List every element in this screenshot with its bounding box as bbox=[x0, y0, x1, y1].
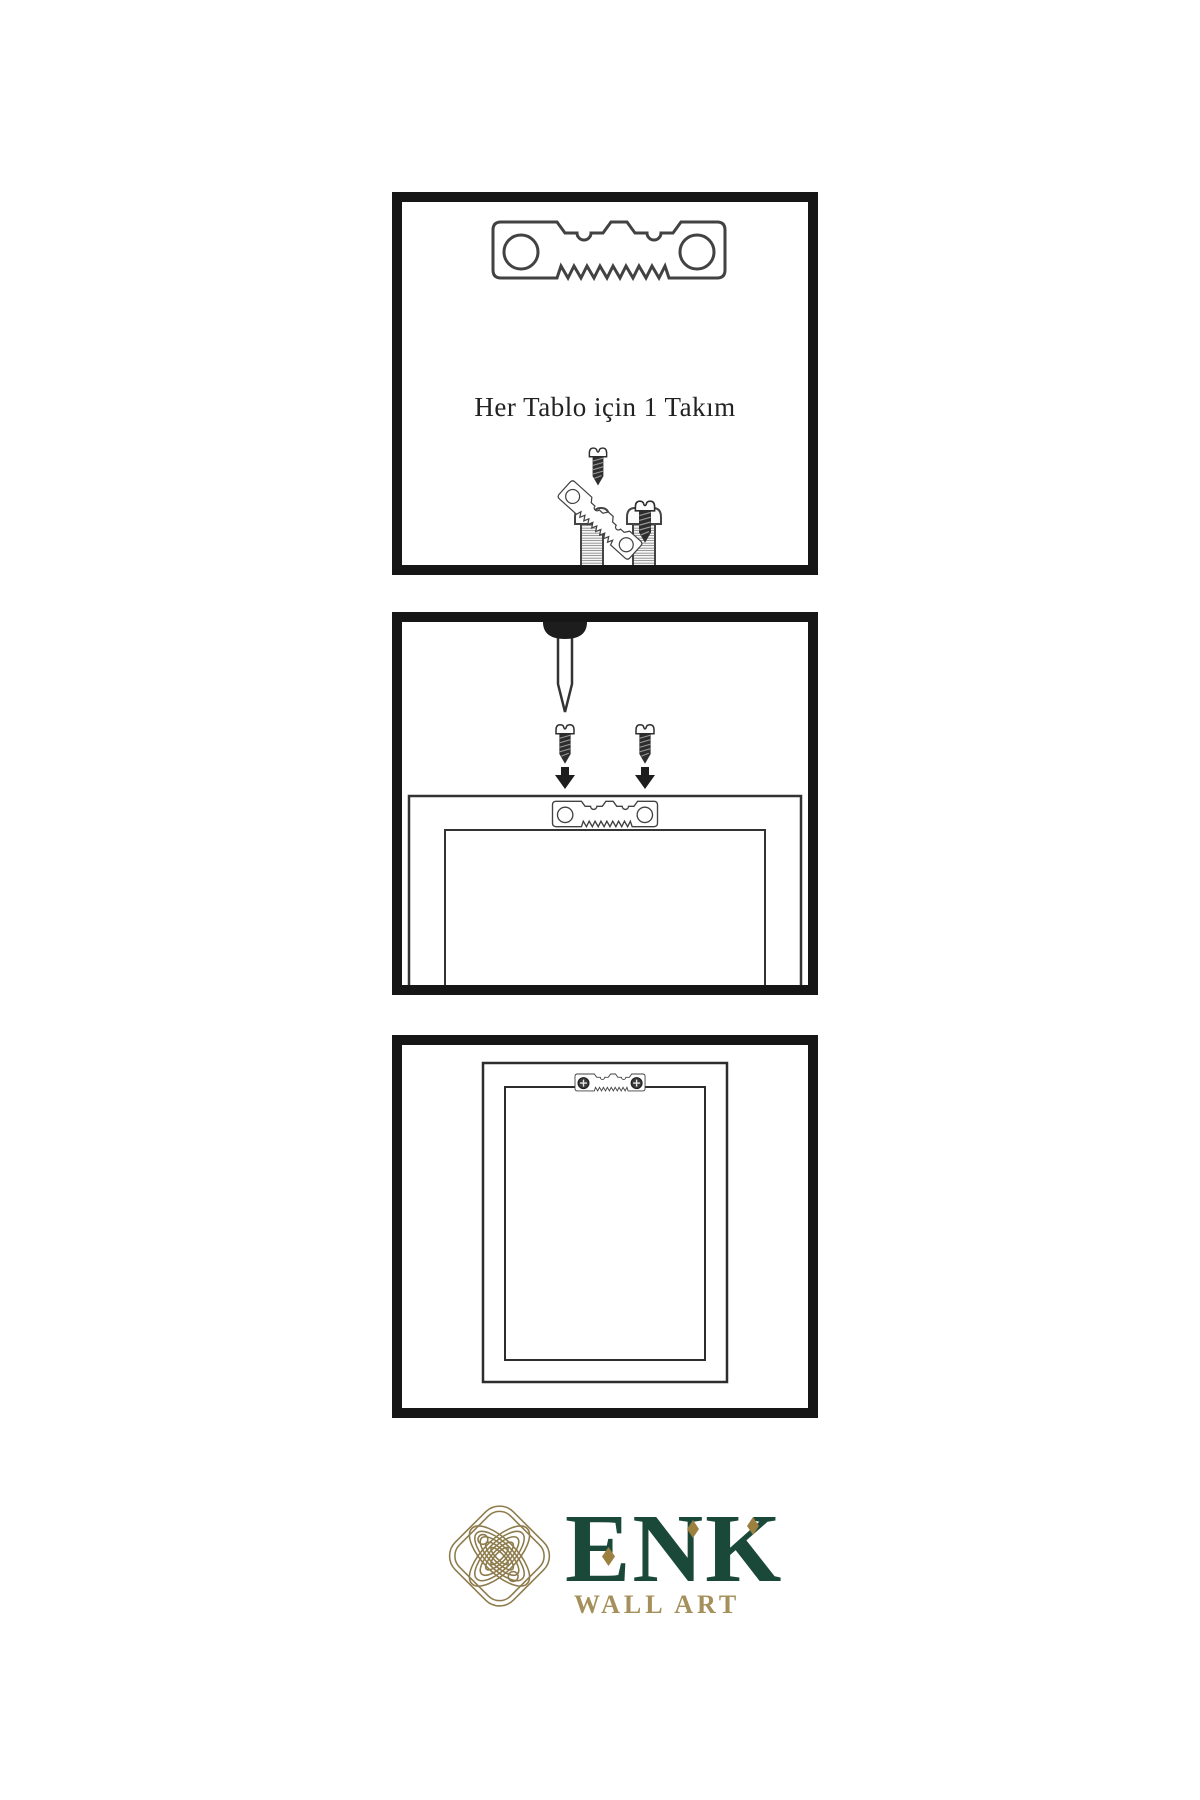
brand-name: ENK bbox=[565, 1500, 795, 1598]
step-panel-hardware-kit: Her Tablo için 1 Takım bbox=[392, 192, 818, 575]
dark-screw-icon bbox=[636, 725, 654, 764]
hanger-on-frame-icon bbox=[553, 801, 658, 826]
attach-hanger-illustration bbox=[402, 622, 808, 985]
framed-art-illustration bbox=[483, 1063, 727, 1382]
wall-nail-icon bbox=[543, 622, 587, 712]
hardware-kit-illustration bbox=[402, 202, 808, 565]
small-screw-icon bbox=[589, 448, 606, 485]
brand-tagline: WALL ART bbox=[574, 1592, 794, 1618]
instruction-sheet: Her Tablo için 1 Takım bbox=[0, 0, 1200, 1800]
step-panel-hang-frame bbox=[392, 1035, 818, 1418]
down-arrow-icon bbox=[555, 767, 575, 789]
sawtooth-hanger-icon bbox=[493, 222, 725, 278]
step-panel-attach-hanger bbox=[392, 612, 818, 995]
kit-caption: Her Tablo için 1 Takım bbox=[402, 392, 808, 423]
down-arrow-icon bbox=[635, 767, 655, 789]
dark-screw-icon bbox=[556, 725, 574, 764]
knot-logo bbox=[437, 1488, 562, 1626]
hung-frame-illustration bbox=[402, 1045, 808, 1408]
